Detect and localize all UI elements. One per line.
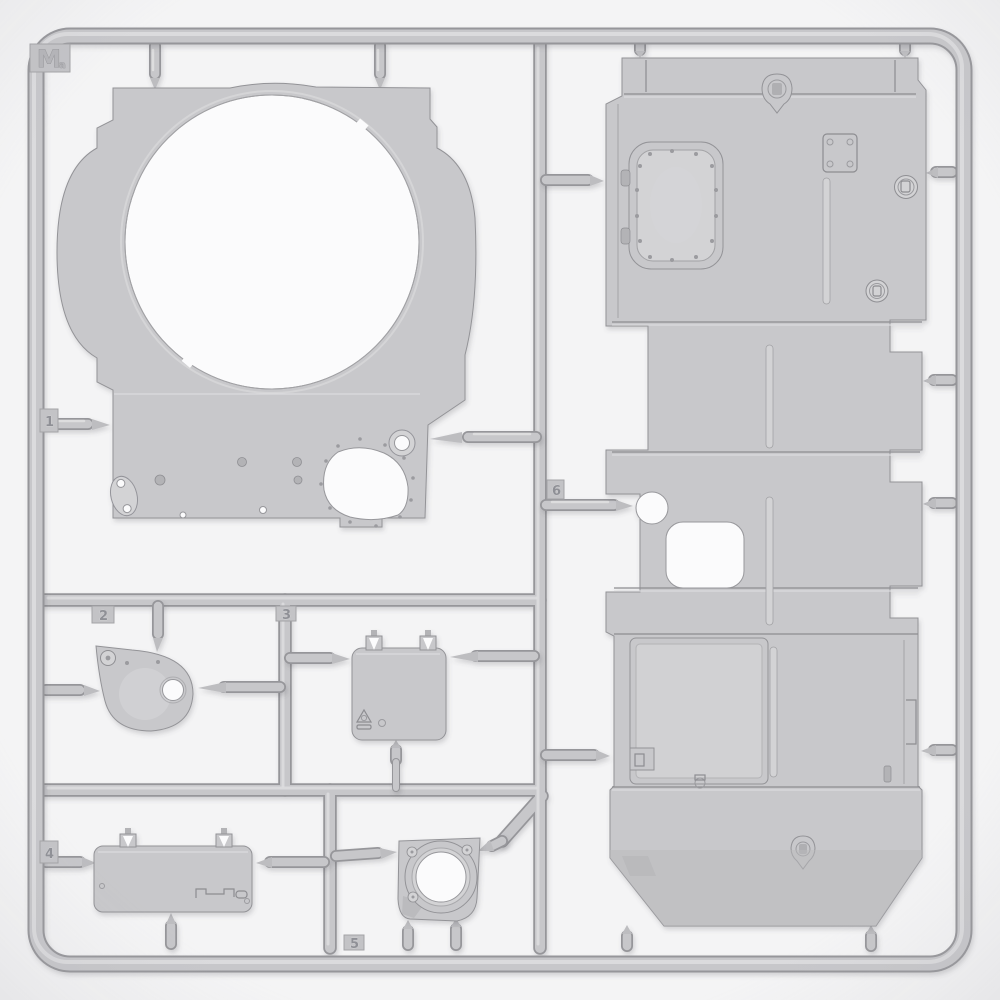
part-number-label: 6: [552, 484, 561, 499]
part-number-label: 5: [350, 937, 359, 952]
sprue-gate: [546, 500, 633, 511]
part-number-tab-6: 6: [547, 480, 564, 499]
sprue-gate: [256, 857, 324, 868]
part-5-ventilator-housing: [398, 838, 480, 921]
part-number-label: 3: [282, 608, 291, 623]
sprue-letter-tab: M a: [30, 44, 70, 73]
sprue-letter-suffix: a: [59, 60, 66, 71]
part-number-label: 1: [45, 415, 54, 430]
sprue-photo: M a 1 2 3 4 5 6: [0, 0, 1000, 1000]
part-number-label: 2: [99, 609, 108, 624]
part-number-label: 4: [45, 847, 54, 862]
part-number-tab-4: 4: [40, 841, 58, 863]
sprue-scene: M a 1 2 3 4 5 6: [0, 0, 1000, 1000]
sprue-gate: [391, 740, 401, 788]
part-6-engine-deck: [606, 58, 926, 926]
part-number-tab-1: 1: [40, 409, 58, 432]
sprue-letter-label: M: [37, 45, 61, 73]
part-number-tab-5: 5: [344, 935, 364, 952]
part-number-tab-3: 3: [276, 606, 296, 623]
part-1-turret-roof: [57, 83, 476, 528]
part-number-tab-2: 2: [92, 606, 114, 624]
